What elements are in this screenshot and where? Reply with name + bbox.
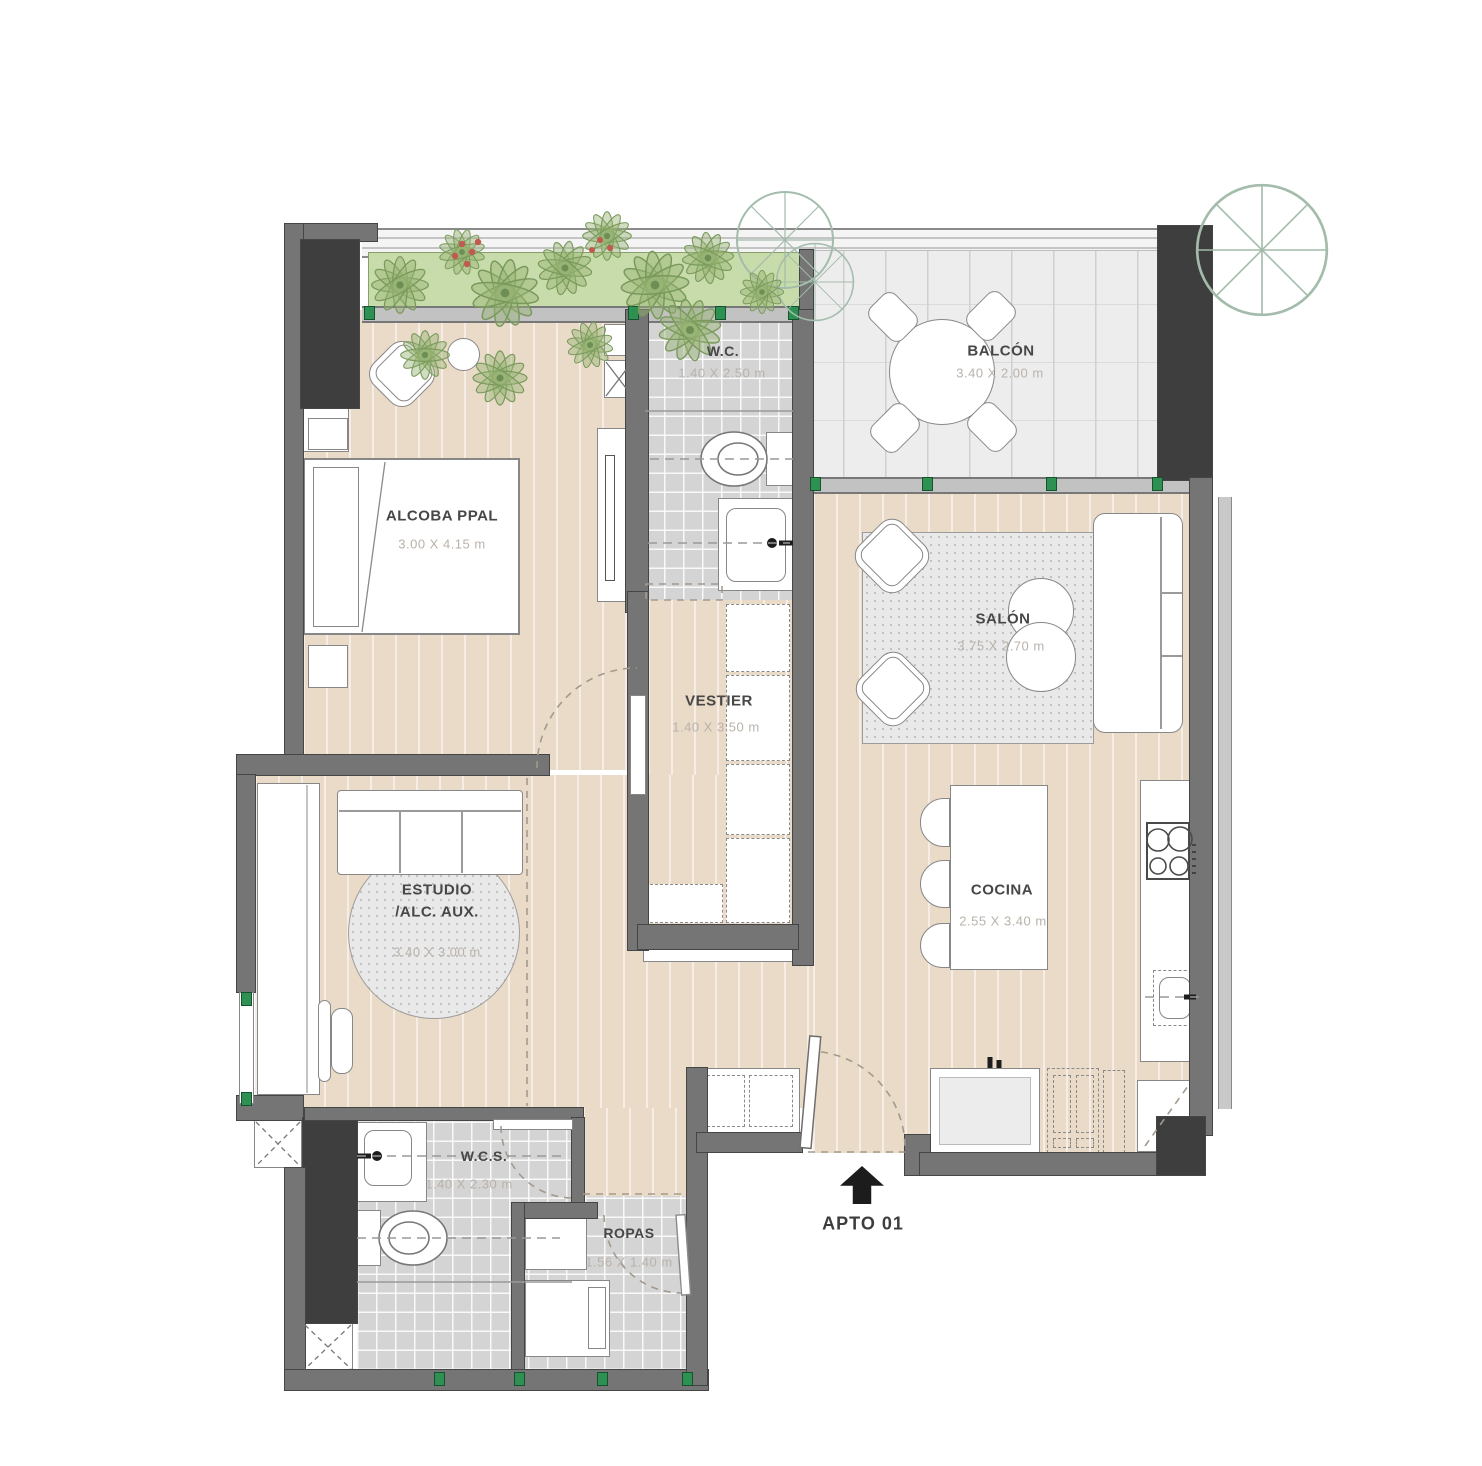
room-dims-wcs: 1.40 X 2.30 m xyxy=(425,1177,512,1192)
wall xyxy=(285,1370,708,1390)
room-label-ropas: ROPAS xyxy=(603,1225,654,1241)
wall xyxy=(237,755,549,775)
room-dims-cocina: 2.55 X 3.40 m xyxy=(959,914,1046,929)
room-dims-salon: 3.75 X 2.70 m xyxy=(957,639,1044,654)
wall xyxy=(285,1168,305,1390)
room-dims-wc: 1.40 X 2.50 m xyxy=(678,366,765,381)
bed-pillow xyxy=(313,467,359,627)
room-label-alcoba: ALCOBA PPAL xyxy=(386,508,498,525)
room-label-salon: SALÓN xyxy=(976,611,1031,628)
sofa-back-line xyxy=(1160,517,1162,729)
closet-module xyxy=(726,764,790,835)
window-marker xyxy=(241,992,252,1006)
dryer-panel xyxy=(588,1287,606,1349)
sofa-back-line xyxy=(339,810,521,812)
sink-icon xyxy=(726,508,786,582)
wardrobe-line xyxy=(306,785,308,1093)
window-marker xyxy=(922,477,933,491)
fridge-detail xyxy=(1053,1075,1071,1133)
duct-x-icon xyxy=(254,1120,302,1168)
vestier-bench xyxy=(645,884,723,923)
wall xyxy=(697,1133,802,1152)
sink-icon xyxy=(364,1130,412,1186)
room-dims-alcoba: 3.00 X 4.15 m xyxy=(398,537,485,552)
structural-column xyxy=(303,1118,357,1323)
coffee-table xyxy=(1006,622,1076,692)
tree-icon xyxy=(1197,185,1327,315)
appliance-outline xyxy=(1103,1070,1125,1153)
room-label-vestier: VESTIER xyxy=(685,693,753,710)
room-label-balcon: BALCÓN xyxy=(967,343,1034,360)
window-marker xyxy=(364,306,375,320)
structural-column xyxy=(1158,226,1212,480)
room-label-wc: W.C. xyxy=(707,343,739,359)
wall xyxy=(638,925,798,949)
duct-x-icon xyxy=(303,1323,353,1371)
side-table xyxy=(447,338,480,371)
closet-module xyxy=(726,604,790,672)
wall xyxy=(512,1203,524,1369)
window-marker xyxy=(514,1372,525,1386)
window-marker xyxy=(788,306,799,320)
facade-line xyxy=(1218,497,1232,1109)
window-marker xyxy=(810,477,821,491)
estudio-window xyxy=(239,992,254,1104)
wall-recess xyxy=(643,949,793,962)
sink-icon xyxy=(1159,977,1191,1019)
room-label-estudio: ESTUDIO xyxy=(402,882,472,899)
tv xyxy=(605,455,615,581)
sink-basin xyxy=(939,1077,1031,1145)
desk-chair-back xyxy=(318,1000,331,1082)
room-label-estudio-2: /ALC. AUX. xyxy=(395,904,479,921)
window-marker xyxy=(682,1372,693,1386)
wcs-door-leaf xyxy=(493,1119,573,1130)
sofa-cushion-line xyxy=(1160,655,1182,657)
sofa xyxy=(1093,513,1183,733)
wall xyxy=(572,1118,584,1205)
planter-strip xyxy=(368,252,814,310)
window-marker xyxy=(715,306,726,320)
toilet-tank xyxy=(357,1210,381,1266)
window-sill-north xyxy=(362,306,814,323)
window-marker xyxy=(1152,477,1163,491)
sofa-cushion-line xyxy=(1160,592,1182,594)
room-label-wcs: W.C.S. xyxy=(461,1148,508,1164)
estudio-sofa xyxy=(337,790,523,875)
fridge-detail xyxy=(1053,1138,1071,1148)
kitchen-island xyxy=(950,785,1048,970)
desk-chair xyxy=(331,1008,353,1074)
room-dims-balcon: 3.40 X 2.00 m xyxy=(956,366,1043,381)
closet-module xyxy=(726,675,790,761)
wall xyxy=(626,310,648,612)
room-dims-estudio: 3.40 X 3.00 m xyxy=(393,945,480,960)
window-marker xyxy=(1046,477,1057,491)
wall xyxy=(687,1068,707,1385)
window-marker xyxy=(434,1372,445,1386)
sofa-cushion-line xyxy=(399,812,401,873)
sofa-cushion-line xyxy=(461,812,463,873)
estudio-wardrobe xyxy=(257,783,320,1095)
room-dims-ropas: 1.56 X 1.40 m xyxy=(585,1255,672,1270)
nightstand xyxy=(308,418,348,450)
washer xyxy=(525,1215,587,1270)
room-dims-vestier: 1.40 X 3.50 m xyxy=(672,720,759,735)
fridge-detail xyxy=(1076,1075,1094,1133)
wall xyxy=(793,310,813,965)
nightstand xyxy=(308,645,348,688)
wall xyxy=(1190,478,1212,1135)
stove-icon xyxy=(1146,822,1190,880)
window-marker xyxy=(597,1372,608,1386)
window-sill-balcony xyxy=(800,477,1192,494)
structural-column xyxy=(1157,1117,1205,1175)
apartment-label: APTO 01 xyxy=(822,1214,904,1235)
entry-cabinet-module xyxy=(749,1075,793,1127)
wall xyxy=(920,1153,1162,1175)
window-marker xyxy=(241,1092,252,1106)
fridge-detail xyxy=(1076,1138,1094,1148)
toilet-tank xyxy=(766,432,793,486)
wall xyxy=(512,1203,597,1218)
entry-cabinet-module xyxy=(707,1075,745,1127)
floor-plan: ALCOBA PPAL 3.00 X 4.15 m W.C. 1.40 X 2.… xyxy=(0,0,1482,1466)
wall xyxy=(237,775,255,992)
hall-to-ropas-floor xyxy=(583,1108,687,1196)
room-label-cocina: COCINA xyxy=(971,882,1033,899)
closet-module xyxy=(726,838,790,923)
window-marker xyxy=(628,306,639,320)
structural-column xyxy=(301,240,359,408)
vestier-door-leaf xyxy=(630,695,646,795)
entrance-arrow-icon xyxy=(840,1166,884,1204)
